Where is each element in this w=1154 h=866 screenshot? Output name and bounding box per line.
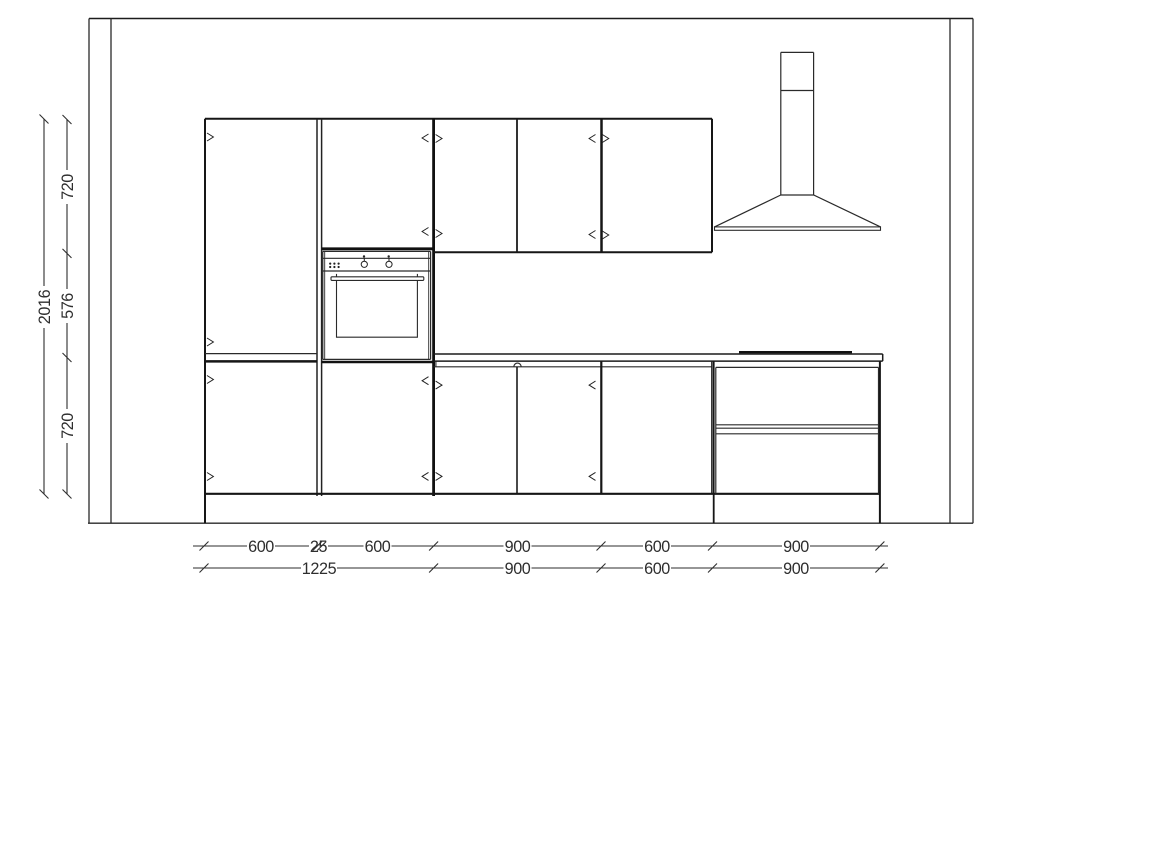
- svg-text:576: 576: [59, 293, 77, 319]
- svg-text:720: 720: [59, 413, 77, 439]
- svg-text:600: 600: [644, 560, 670, 578]
- svg-text:900: 900: [505, 560, 531, 578]
- svg-text:900: 900: [783, 560, 809, 578]
- svg-text:2016: 2016: [36, 289, 54, 324]
- svg-text:1225: 1225: [302, 560, 337, 578]
- svg-text:600: 600: [365, 538, 391, 556]
- svg-text:900: 900: [505, 538, 531, 556]
- svg-text:25: 25: [310, 538, 328, 556]
- svg-text:600: 600: [248, 538, 274, 556]
- svg-text:600: 600: [644, 538, 670, 556]
- svg-text:720: 720: [59, 174, 77, 200]
- svg-text:900: 900: [783, 538, 809, 556]
